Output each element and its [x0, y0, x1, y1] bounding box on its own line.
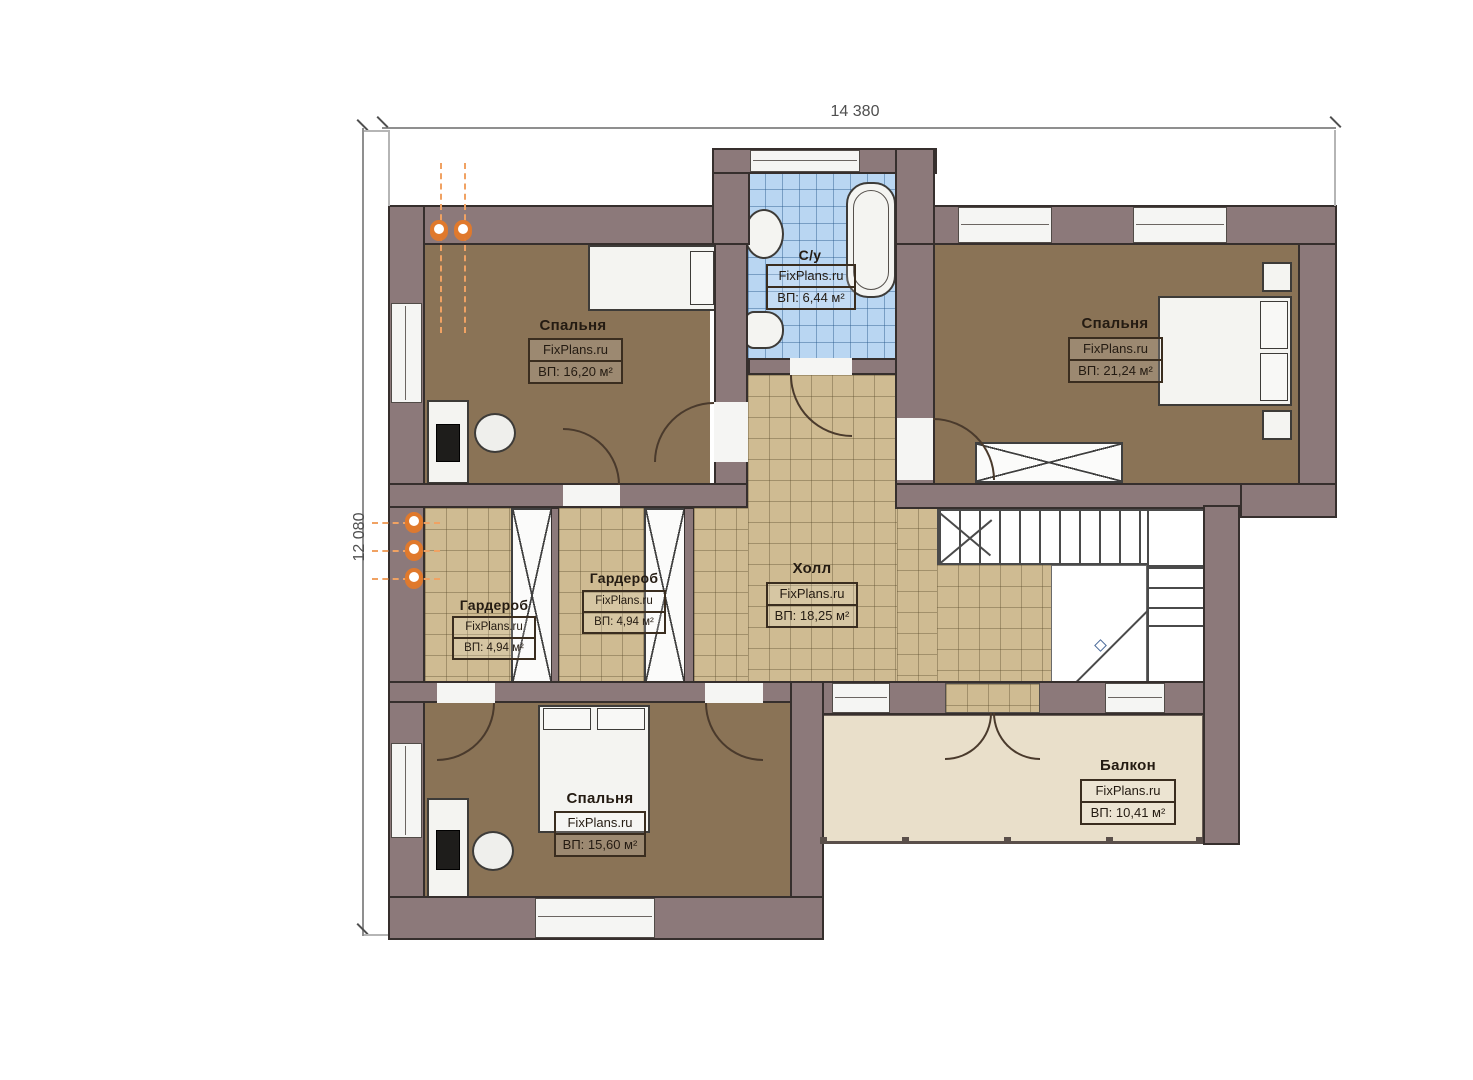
- area-label: ВП: 4,94 м²: [584, 613, 664, 632]
- computer-monitor: [436, 424, 460, 462]
- room-title-balcony: Балкон: [1068, 757, 1188, 774]
- dimension-extension: [1334, 130, 1336, 206]
- dimension-height-label: 12 080: [351, 497, 369, 577]
- bathtub-basin: [853, 190, 889, 290]
- area-label: ВП: 10,41 м²: [1082, 803, 1174, 823]
- radiator-icon: [405, 540, 423, 558]
- room-title-bathroom: С/у: [770, 247, 850, 263]
- door-opening: [897, 418, 933, 480]
- desk-chair: [472, 831, 514, 871]
- desk-chair: [474, 413, 516, 453]
- window: [1133, 207, 1227, 243]
- wall-right-upper: [1298, 243, 1337, 488]
- door-opening: [714, 402, 748, 462]
- brand-label: FixPlans.ru: [530, 340, 621, 362]
- brand-label: FixPlans.ru: [768, 266, 854, 288]
- dimension-extension: [364, 130, 388, 132]
- computer-monitor: [436, 830, 460, 870]
- riser-line: [440, 163, 442, 333]
- pillow: [543, 708, 591, 730]
- riser-line: [464, 163, 466, 333]
- railing-post: [1004, 837, 1011, 844]
- room-info-bathroom: FixPlans.ru ВП: 6,44 м²: [766, 264, 856, 310]
- area-label: ВП: 4,94 м²: [454, 639, 534, 658]
- room-title-wardrobe-left: Гардероб: [434, 597, 554, 613]
- radiator-icon: [405, 568, 423, 586]
- floor-hall-left-of-stairs: [897, 507, 937, 683]
- brand-label: FixPlans.ru: [454, 618, 534, 639]
- window: [391, 743, 422, 838]
- floor-hall-corridor: [694, 508, 748, 683]
- brand-label: FixPlans.ru: [584, 592, 664, 613]
- window: [832, 683, 890, 713]
- radiator-icon: [405, 512, 423, 530]
- room-info-wardrobe-left: FixPlans.ru ВП: 4,94 м²: [452, 616, 536, 660]
- area-label: ВП: 16,20 м²: [530, 362, 621, 382]
- stairs-landing: [1147, 509, 1205, 567]
- floor-plan: Спальня FixPlans.ru ВП: 16,20 м² С/у Fix…: [0, 0, 1473, 1080]
- balcony-railing: [822, 841, 1203, 844]
- room-info-balcony: FixPlans.ru ВП: 10,41 м²: [1080, 779, 1176, 825]
- room-info-hall: FixPlans.ru ВП: 18,25 м²: [766, 582, 858, 628]
- room-info-bedroom-bottom: FixPlans.ru ВП: 15,60 м²: [554, 811, 646, 857]
- dresser: [975, 442, 1123, 483]
- window: [391, 303, 422, 403]
- window: [958, 207, 1052, 243]
- window: [750, 150, 860, 172]
- wall-right-step: [1240, 483, 1337, 518]
- door-opening: [563, 485, 620, 506]
- area-label: ВП: 21,24 м²: [1070, 361, 1161, 381]
- pillow: [1260, 301, 1288, 349]
- balcony-door-opening: [945, 683, 1040, 713]
- nightstand: [1262, 410, 1292, 440]
- area-label: ВП: 18,25 м²: [768, 606, 856, 626]
- room-info-wardrobe-middle: FixPlans.ru ВП: 4,94 м²: [582, 590, 666, 634]
- wall-bathroom-bump-right: [895, 148, 935, 245]
- area-label: ВП: 6,44 м²: [768, 288, 854, 308]
- wall-right-lower: [1203, 505, 1240, 845]
- door-opening: [705, 683, 763, 703]
- room-info-bedroom-top-right: FixPlans.ru ВП: 21,24 м²: [1068, 337, 1163, 383]
- railing-post: [1196, 837, 1203, 844]
- room-title-wardrobe-middle: Гардероб: [564, 570, 684, 586]
- room-title-bedroom-bottom: Спальня: [540, 790, 660, 807]
- nightstand: [1262, 262, 1292, 292]
- door-opening: [437, 683, 495, 703]
- brand-label: FixPlans.ru: [556, 813, 644, 835]
- pillow: [597, 708, 645, 730]
- room-title-bedroom-top-right: Спальня: [1055, 315, 1175, 332]
- area-label: ВП: 15,60 м²: [556, 835, 644, 855]
- window: [535, 898, 655, 938]
- dimension-extension: [388, 130, 390, 206]
- brand-label: FixPlans.ru: [768, 584, 856, 606]
- railing-post: [1106, 837, 1113, 844]
- dimension-line-top: [382, 127, 1336, 129]
- room-title-hall: Холл: [752, 560, 872, 577]
- pillow: [690, 251, 714, 305]
- room-info-bedroom-top-left: FixPlans.ru ВП: 16,20 м²: [528, 338, 623, 384]
- railing-post: [820, 837, 827, 844]
- railing-post: [902, 837, 909, 844]
- stairs-lower-right: [1147, 625, 1205, 683]
- pillow: [1260, 353, 1288, 401]
- door-opening: [790, 358, 852, 375]
- room-title-bedroom-top-left: Спальня: [513, 317, 633, 334]
- brand-label: FixPlans.ru: [1082, 781, 1174, 803]
- stairs-right-flight: [1147, 565, 1205, 627]
- wall-wardrobe-divider-2: [684, 508, 694, 685]
- radiator-icon: [430, 220, 448, 238]
- floor-hall-below-stairs: [937, 565, 1051, 683]
- dimension-extension: [364, 934, 388, 936]
- toilet: [744, 311, 784, 349]
- brand-label: FixPlans.ru: [1070, 339, 1161, 361]
- dimension-width-label: 14 380: [795, 103, 915, 121]
- window: [1105, 683, 1165, 713]
- radiator-icon: [454, 220, 472, 238]
